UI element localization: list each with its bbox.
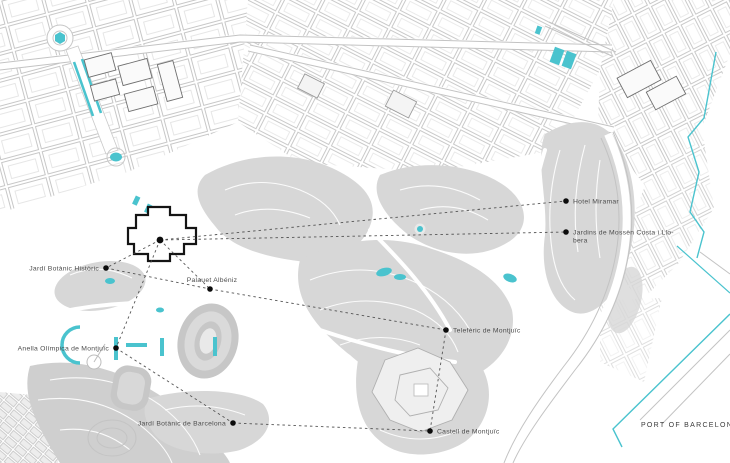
poi-label-palauet-albeniz[interactable]: Palauet Albéniz xyxy=(187,277,238,284)
poi-dot-hotel-miramar[interactable] xyxy=(563,198,569,204)
poi-dot-anella-olimpica-de-montjuic[interactable] xyxy=(113,345,119,351)
poi-label-jardins-de-mossen-costa-i-llobera[interactable]: Jardins de Mossèn Costa i Llo-bera xyxy=(573,229,674,244)
poi-label-jardi-botanic-historic[interactable]: Jardí Botànic Històric xyxy=(29,265,99,272)
poi-dot-jardins-de-mossen-costa-i-llobera[interactable] xyxy=(563,229,569,235)
poi-label-anella-olimpica-de-montjuic[interactable]: Anella Olímpica de Montjuïc xyxy=(18,345,110,352)
route-palau-nacional--anella-olimpica-de-montjuic xyxy=(116,240,160,348)
poi-dot-jardi-botanic-de-barcelona[interactable] xyxy=(230,420,236,426)
poi-label-teleferic-de-montjuic[interactable]: Telefèric de Montjuïc xyxy=(453,327,521,334)
route-jardi-botanic-de-barcelona--castell-de-montjuic xyxy=(233,423,430,431)
route-anella-olimpica-de-montjuic--jardi-botanic-de-barcelona xyxy=(116,348,233,423)
route-palau-nacional--jardi-botanic-historic xyxy=(106,240,160,268)
poi-label-jardi-botanic-de-barcelona[interactable]: Jardí Botànic de Barcelona xyxy=(138,420,226,427)
poi-label-castell-de-montjuic[interactable]: Castell de Montjuïc xyxy=(437,428,500,435)
poi-dot-teleferic-de-montjuic[interactable] xyxy=(443,327,449,333)
poi-dot-castell-de-montjuic[interactable] xyxy=(427,428,433,434)
poi-overlay: Hotel MiramarJardins de Mossèn Costa i L… xyxy=(0,0,730,463)
poi-dot-palauet-albeniz[interactable] xyxy=(207,286,213,292)
route-teleferic-de-montjuic--castell-de-montjuic xyxy=(430,330,446,431)
montjuic-map: Hotel MiramarJardins de Mossèn Costa i L… xyxy=(0,0,730,463)
route-palauet-albeniz--teleferic-de-montjuic xyxy=(210,289,446,330)
route-palau-nacional--hotel-miramar xyxy=(160,201,566,240)
poi-dot-jardi-botanic-historic[interactable] xyxy=(103,265,109,271)
route-palau-nacional--jardins-de-mossen-costa-i-llobera xyxy=(160,232,566,240)
poi-dot-palau-nacional[interactable] xyxy=(157,237,164,244)
port-of-barcelona-label: PORT OF BARCELONA xyxy=(641,422,730,429)
poi-label-hotel-miramar[interactable]: Hotel Miramar xyxy=(573,198,619,205)
